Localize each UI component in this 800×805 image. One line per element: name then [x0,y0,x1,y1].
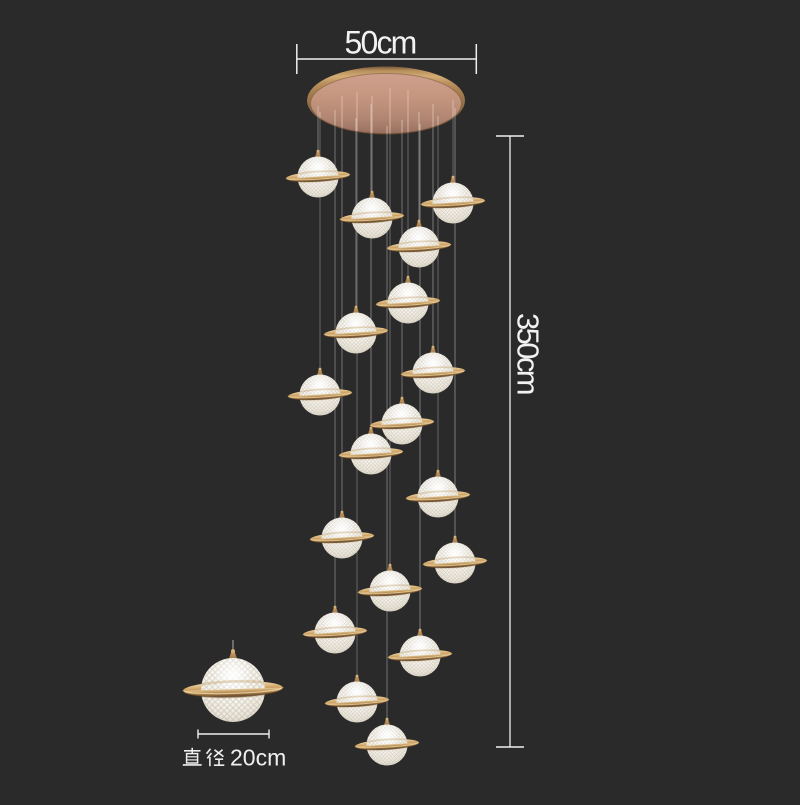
svg-text:50cm: 50cm [344,25,415,61]
svg-text:20cm: 20cm [230,745,286,771]
svg-text:350cm: 350cm [511,313,546,394]
